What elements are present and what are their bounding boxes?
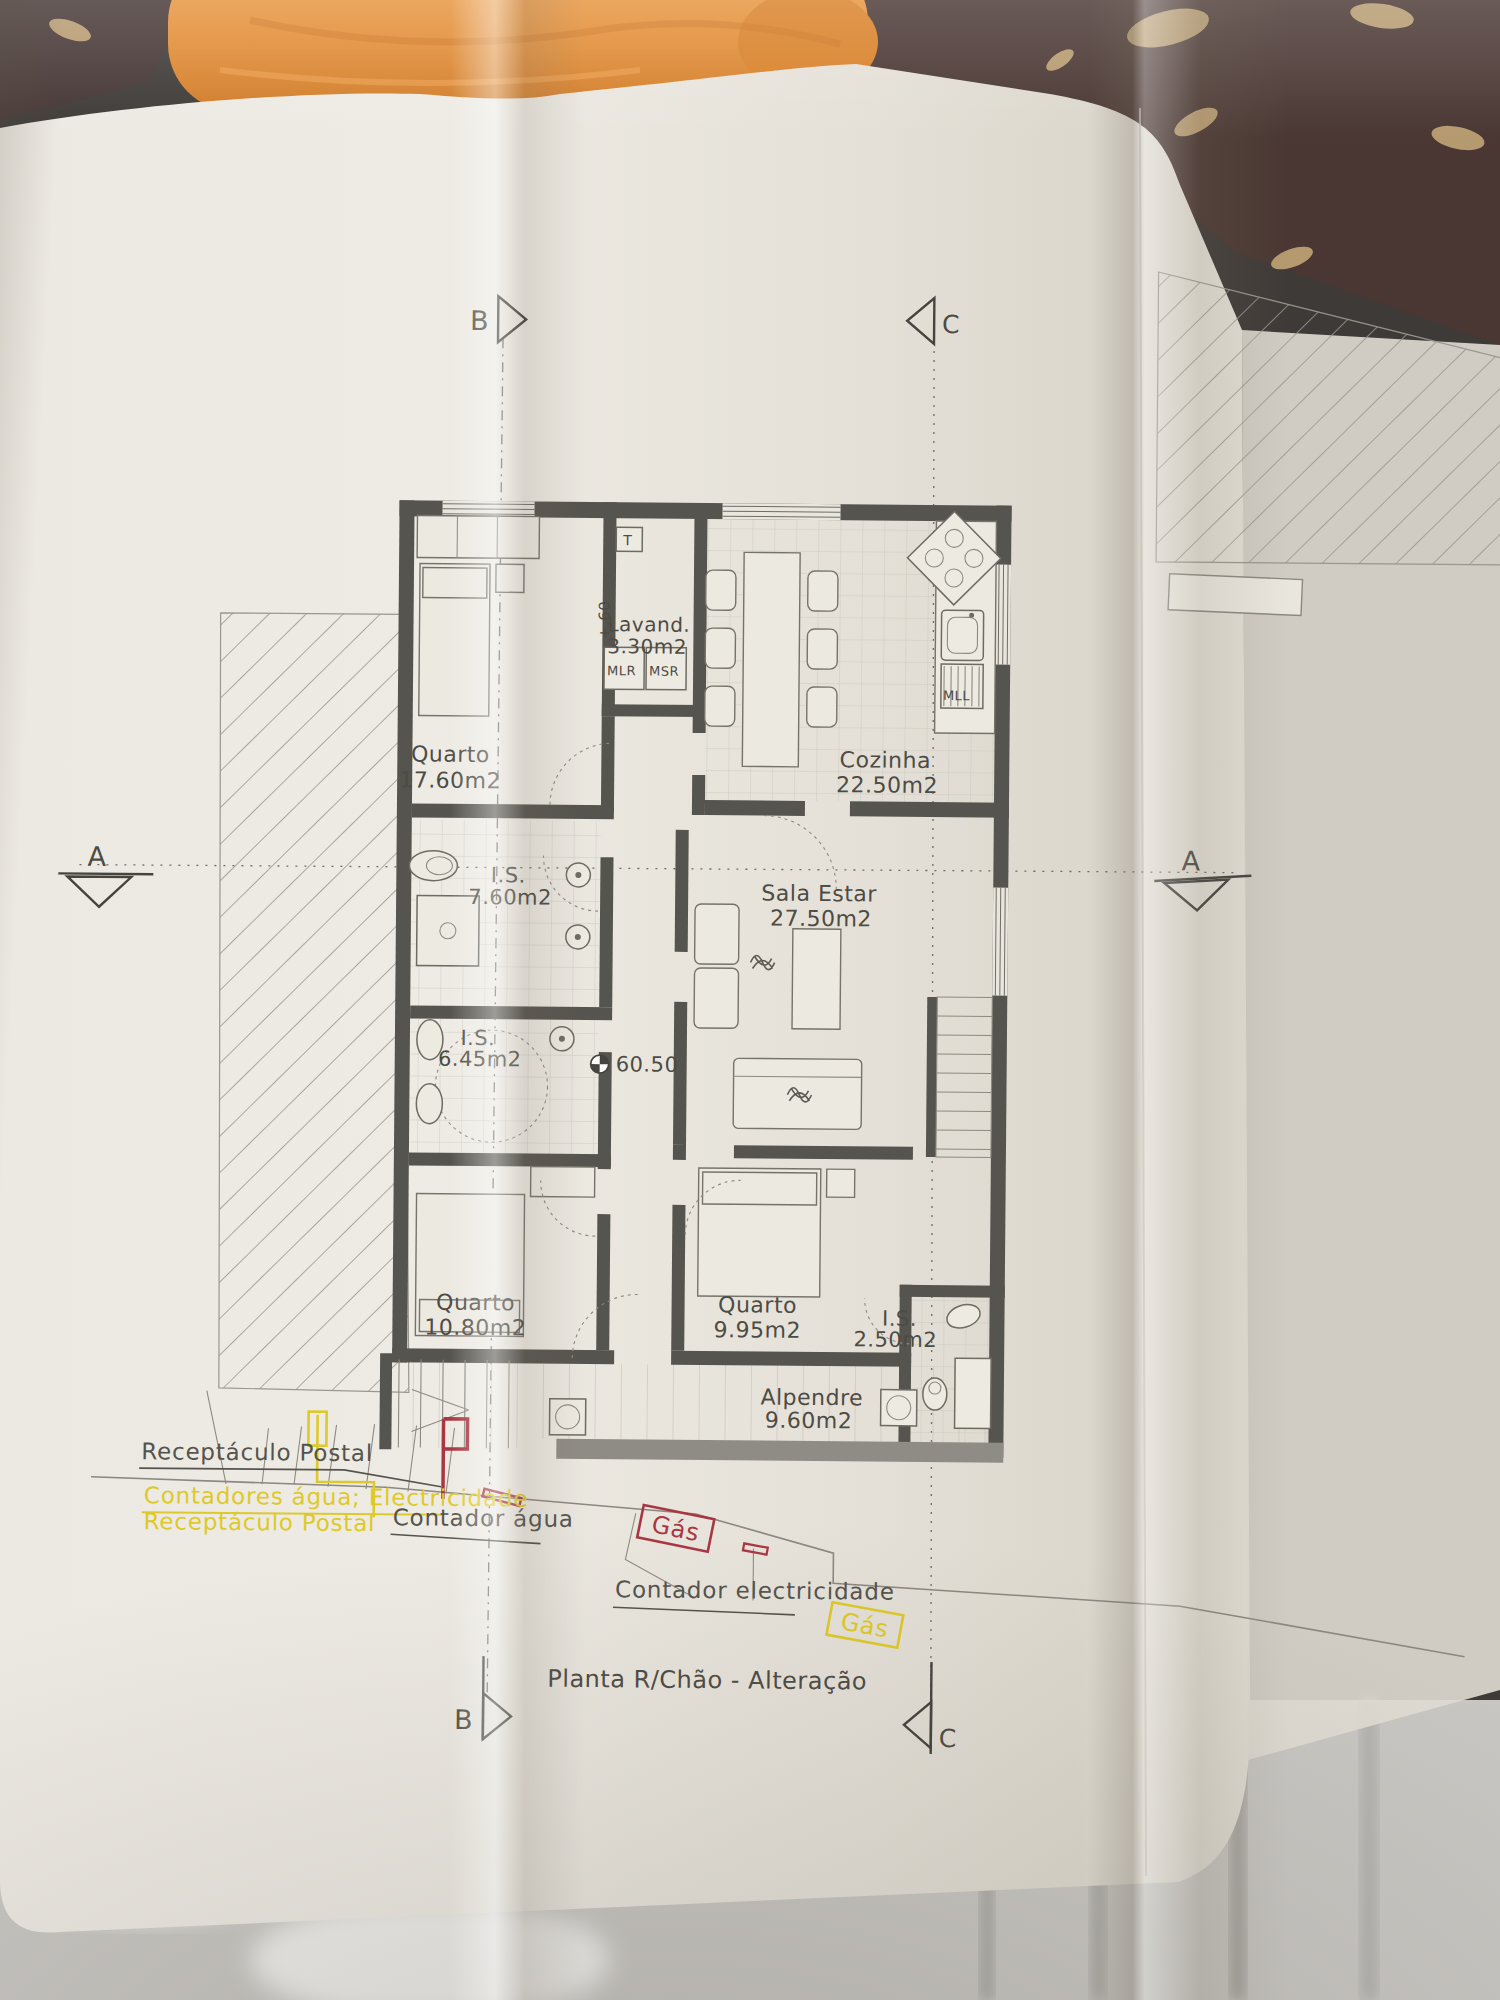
room-label-alpendre: Alpendre 9.60m2	[760, 1385, 863, 1434]
room-label-quarto-2: Quarto 10.80m2	[424, 1290, 526, 1341]
room-name: Quarto	[436, 1290, 515, 1316]
room-area: 22.50m2	[836, 772, 938, 798]
window	[995, 565, 1011, 665]
gas-label-main: Gás	[637, 1505, 714, 1552]
room-name: Sala Estar	[761, 881, 877, 907]
bed-quarto-3	[698, 1168, 855, 1297]
hatched-area-left	[214, 613, 416, 1393]
plant-icon	[751, 955, 775, 969]
bed-quarto-1	[416, 516, 540, 717]
living-room-furniture	[693, 904, 993, 1158]
floor-plan-drawing: B C A A B	[0, 0, 1500, 2000]
room-area: 17.60m2	[399, 767, 501, 793]
room-area: 9.60m2	[765, 1408, 853, 1434]
section-marker-a-right: A	[1154, 845, 1252, 911]
annotation-text: Contador electricidade	[615, 1576, 895, 1604]
gas-meter-symbol	[743, 1543, 768, 1554]
sink-icon	[941, 610, 983, 660]
marker-label: B	[470, 305, 489, 336]
stairs	[936, 997, 992, 1157]
section-marker-c-bottom: C	[904, 1662, 958, 1754]
room-label-sala-estar: Sala Estar 27.50m2	[761, 881, 877, 932]
marker-label: B	[454, 1704, 473, 1735]
annotation-text: Receptáculo Postal	[144, 1508, 376, 1536]
marker-label: A	[87, 841, 106, 872]
room-area: 2.50m2	[853, 1327, 937, 1352]
dryer-label: MSR	[649, 664, 679, 679]
dishwasher-label: MLL	[943, 688, 971, 703]
hatched-area-top-right	[1156, 272, 1500, 565]
section-marker-b-bottom: B	[454, 1656, 512, 1740]
room-area: 27.50m2	[770, 906, 872, 932]
photo-of-floor-plan: B C A A B	[0, 0, 1500, 2000]
room-area: 3.30m2	[607, 634, 687, 659]
washer-label: MLR	[607, 663, 636, 678]
annotation-text: Receptáculo Postal	[141, 1438, 373, 1466]
dishwasher-icon: MLL	[941, 664, 983, 708]
section-marker-c-top: C	[907, 298, 960, 344]
window	[722, 503, 840, 520]
section-marker-a-left: A	[58, 840, 154, 907]
marker-label: C	[939, 1724, 957, 1753]
room-area: 7.60m2	[468, 885, 552, 910]
annotation-text: Contador água	[393, 1504, 574, 1532]
room-name: Lavand.	[607, 612, 690, 637]
room-name: Cozinha	[840, 747, 932, 773]
room-area: 9.95m2	[714, 1317, 802, 1343]
water-heater-label: T	[622, 532, 632, 548]
room-name: I.S.	[491, 863, 526, 887]
room-label-quarto-1: Quarto 17.60m2	[399, 741, 501, 793]
room-label-lavandaria: Lavand. 3.30m2	[607, 612, 690, 659]
level-marker: 60.50	[591, 1052, 679, 1077]
annotation-contador-agua: Contador água	[391, 1504, 574, 1544]
marker-label: C	[942, 310, 960, 339]
room-name: Alpendre	[760, 1385, 863, 1411]
window	[992, 888, 1008, 996]
gas-label-secondary: Gás	[826, 1602, 903, 1648]
marker-label: A	[1181, 845, 1200, 876]
room-area: 6.45m2	[438, 1047, 522, 1072]
room-name: Quarto	[411, 741, 490, 767]
section-marker-b-top: B	[470, 296, 526, 342]
drawing-title: Planta R/Chão - Alteração	[547, 1665, 867, 1696]
room-name: Quarto	[718, 1292, 797, 1318]
room-label-quarto-3: Quarto 9.95m2	[714, 1292, 802, 1343]
window	[442, 501, 534, 518]
room-label-cozinha: Cozinha 22.50m2	[836, 747, 938, 798]
level-value: 60.50	[616, 1052, 679, 1077]
room-area: 10.80m2	[424, 1315, 526, 1341]
outbuilding-rect	[1168, 574, 1302, 616]
